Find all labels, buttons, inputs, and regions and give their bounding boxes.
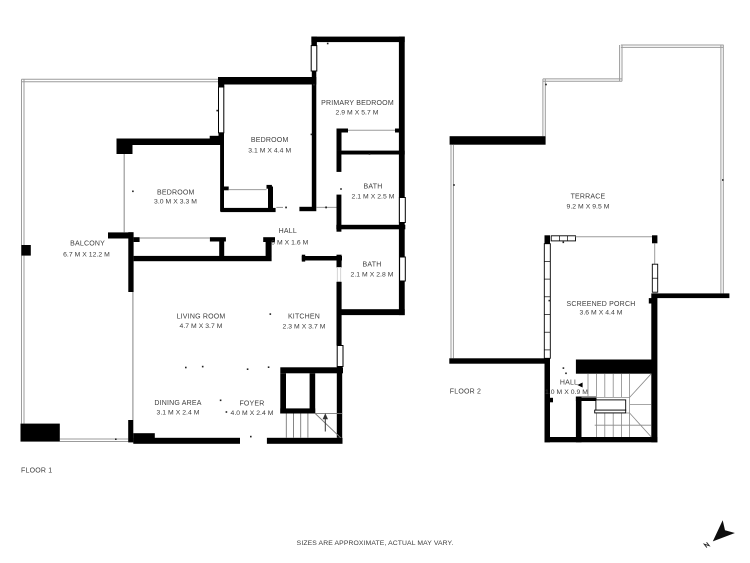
svg-text:3.1 M X 4.4 M: 3.1 M X 4.4 M xyxy=(248,147,291,154)
svg-text:FLOOR 1: FLOOR 1 xyxy=(21,467,52,474)
svg-text:TERRACE: TERRACE xyxy=(571,194,606,201)
svg-text:3.1 M X 2.4 M: 3.1 M X 2.4 M xyxy=(157,410,200,417)
svg-text:3.0 M X 3.3 M: 3.0 M X 3.3 M xyxy=(154,198,197,205)
svg-text:BATH: BATH xyxy=(364,184,383,191)
svg-text:SIZES ARE APPROXIMATE, ACTUAL: SIZES ARE APPROXIMATE, ACTUAL MAY VARY. xyxy=(297,540,454,547)
svg-text:FLOOR 2: FLOOR 2 xyxy=(450,388,481,395)
svg-text:2.3 M X 3.7 M: 2.3 M X 3.7 M xyxy=(283,323,326,330)
svg-text:4.0 M X 2.4 M: 4.0 M X 2.4 M xyxy=(231,410,274,417)
svg-text:2.1 M X 2.5 M: 2.1 M X 2.5 M xyxy=(352,193,395,200)
svg-text:2.9 M X 5.7 M: 2.9 M X 5.7 M xyxy=(336,110,379,117)
svg-text:BATH: BATH xyxy=(363,262,382,269)
svg-text:BEDROOM: BEDROOM xyxy=(157,189,195,196)
svg-text:KITCHEN: KITCHEN xyxy=(288,314,320,321)
svg-text:3.6 M X 4.4 M: 3.6 M X 4.4 M xyxy=(580,310,623,317)
svg-text:HALL: HALL xyxy=(279,228,297,235)
svg-text:BEDROOM: BEDROOM xyxy=(251,137,289,144)
svg-text:DINING AREA: DINING AREA xyxy=(154,400,201,407)
svg-text:1.0 M X 0.9 M: 1.0 M X 0.9 M xyxy=(545,389,588,396)
svg-text:FOYER: FOYER xyxy=(239,400,264,407)
svg-text:9 M X 1.6 M: 9 M X 1.6 M xyxy=(271,240,308,247)
svg-text:BALCONY: BALCONY xyxy=(70,241,105,248)
svg-text:LIVING ROOM: LIVING ROOM xyxy=(177,314,226,321)
svg-text:2.1 M X 2.8 M: 2.1 M X 2.8 M xyxy=(351,272,394,279)
svg-text:4.7 M X 3.7 M: 4.7 M X 3.7 M xyxy=(180,323,223,330)
svg-text:SCREENED PORCH: SCREENED PORCH xyxy=(567,301,636,308)
svg-text:6.7 M X 12.2 M: 6.7 M X 12.2 M xyxy=(63,252,110,259)
svg-text:9.2 M X 9.5 M: 9.2 M X 9.5 M xyxy=(567,204,610,211)
svg-text:HALL: HALL xyxy=(560,380,578,387)
svg-text:PRIMARY BEDROOM: PRIMARY BEDROOM xyxy=(321,100,394,107)
